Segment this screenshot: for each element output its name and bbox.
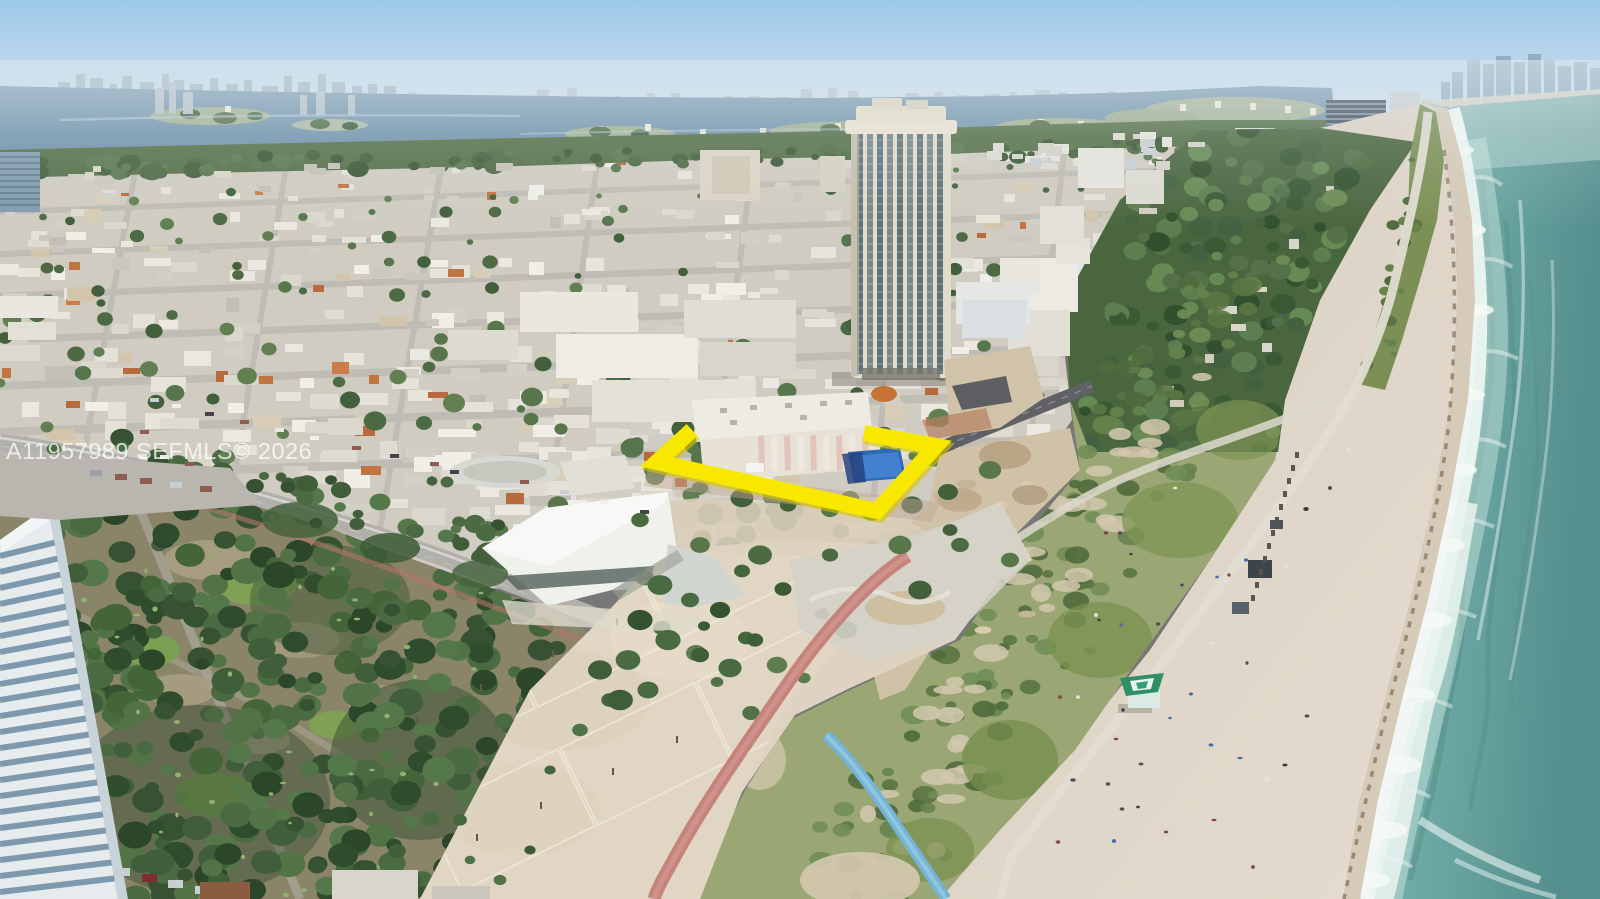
svg-text:A11957989 SEFMLS© 2026: A11957989 SEFMLS© 2026 xyxy=(6,438,312,464)
